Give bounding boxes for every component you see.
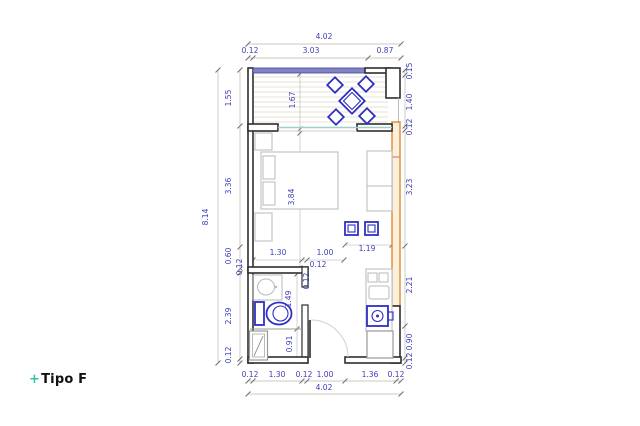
nightstand [255,133,272,150]
dimension-label: 0.90 [405,333,414,350]
dimension-label: 1.19 [359,244,376,253]
dimension-label: 2.39 [224,307,233,324]
dimension-label: 1.40 [405,93,414,110]
dimension-label: 0.91 [285,335,294,352]
balcony-partition-left [248,124,278,131]
dimension-label: 4.02 [316,383,333,392]
floorplan-page: 4.020.123.030.878.141.553.360.600.122.39… [0,0,640,426]
dimension-label: 4.02 [316,32,333,41]
left-wall [248,68,253,363]
dimension-label: 8.14 [201,208,210,225]
orange-highlight-wall [392,122,400,306]
dimension-label: 3.23 [405,178,414,195]
entrance-door [308,320,348,358]
dimension-label: 0.12 [405,352,414,369]
dimension-label: 1.55 [224,89,233,106]
dimension-label: 0.12 [235,258,244,275]
dimension-label: 0.87 [377,46,394,55]
nightstand [255,213,272,241]
dimension-label: 0.12 [242,46,259,55]
dimension-label: 1.49 [284,290,293,307]
wardrobe [367,151,392,211]
bar-stool [365,222,378,235]
corner-shaft [386,68,400,98]
dimension-label: 0.60 [224,247,233,264]
dimension-label: 2.21 [405,276,414,293]
plus-icon: + [29,372,40,387]
dimension-label: 3.03 [303,46,320,55]
dimension-label: 3.84 [287,188,296,205]
shower [250,331,268,360]
bar-stool [345,222,358,235]
dimension-label: 1.30 [270,248,287,257]
dimension-label: 1.67 [288,91,297,108]
dimension-label: 0.12 [405,118,414,135]
dimension-label: 1.30 [269,370,286,379]
fridge [367,331,393,358]
double-bed [261,152,338,209]
dimension-label: 0.12 [388,370,405,379]
door-leaf [308,320,311,358]
bathroom-top-wall [248,267,308,273]
dimension-label: 1.00 [317,370,334,379]
bar-stools [345,222,378,235]
dimension-label: 0.12 [296,370,313,379]
plan-title-text: Tipo F [41,372,87,387]
dimension-label: 3.36 [224,177,233,194]
washbasin [253,275,282,300]
dimension-label: 0.12 [310,260,327,269]
plan-title: +Tipo F [29,372,87,387]
bathroom-side-wall-lower [302,305,308,363]
dimension-label: 0.12 [224,346,233,363]
sliding-window [253,68,367,73]
dimension-label: 0.15 [405,62,414,79]
dimension-label: 1.00 [317,248,334,257]
dimension-label: 0.12 [242,370,259,379]
floorplan-drawing: 4.020.123.030.878.141.553.360.600.122.39… [0,0,640,426]
dimension-label: 1.36 [362,370,379,379]
kitchen [366,269,393,358]
dimension-label: 0.12 [302,272,311,289]
